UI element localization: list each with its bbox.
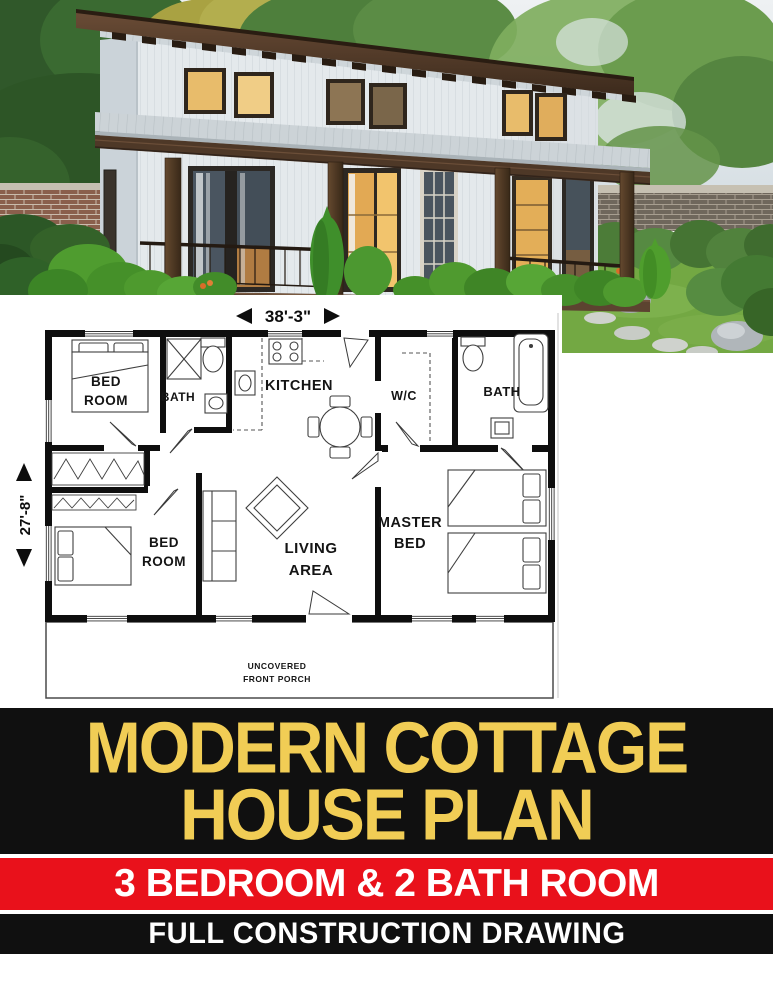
bath-right-label: BATH	[483, 384, 520, 399]
arrow-down-icon	[16, 549, 32, 567]
tagline-banner: FULL CONSTRUCTION DRAWING	[0, 914, 773, 954]
bath-left-label: BATH	[161, 390, 195, 404]
bedroom-bottom-label-line1: BED	[149, 535, 179, 550]
sink-icon	[491, 418, 513, 438]
toilet-icon	[461, 337, 485, 371]
floor-plan-card: 38'-3" 27'-8" UNCOVERED FRONT PORCH	[0, 295, 562, 708]
kitchen-label: KITCHEN	[265, 378, 333, 394]
cover-banners: MODERN COTTAGE HOUSE PLAN 3 BEDROOM & 2 …	[0, 708, 773, 954]
stove-icon	[269, 339, 302, 364]
arrow-right-icon	[324, 308, 340, 324]
closet-icon	[52, 453, 144, 510]
tagline-text: FULL CONSTRUCTION DRAWING	[148, 917, 625, 951]
window-icon	[537, 95, 565, 139]
width-dimension-label: 38'-3"	[265, 307, 311, 326]
porch-label-line2: FRONT PORCH	[243, 674, 311, 684]
porch-label-line1: UNCOVERED	[248, 661, 307, 671]
master-label-line1: MASTER	[378, 515, 442, 531]
sofa-icon	[203, 491, 236, 581]
dimension-width: 38'-3"	[236, 307, 340, 326]
floor-plan: 38'-3" 27'-8" UNCOVERED FRONT PORCH	[0, 295, 562, 708]
window-icon	[236, 74, 272, 116]
bathtub-icon	[514, 334, 548, 412]
bed-icon	[448, 533, 546, 593]
window-icon	[371, 85, 405, 127]
rug-icon	[246, 477, 308, 539]
bedroom-top-label-line2: ROOM	[84, 393, 128, 408]
wc-label: W/C	[391, 389, 417, 403]
window-icon	[328, 81, 363, 123]
front-porch: UNCOVERED FRONT PORCH	[46, 622, 553, 698]
title-line2: HOUSE PLAN	[180, 778, 593, 852]
subtitle-text: 3 BEDROOM & 2 BATH ROOM	[114, 862, 659, 906]
bedroom-top-label-line1: BED	[91, 374, 121, 389]
subtitle-banner: 3 BEDROOM & 2 BATH ROOM	[0, 858, 773, 910]
bed-icon	[55, 527, 131, 585]
living-label-line1: LIVING	[284, 540, 337, 557]
arrow-left-icon	[236, 308, 252, 324]
title-banner: MODERN COTTAGE HOUSE PLAN	[0, 708, 773, 854]
bed-icon	[448, 470, 546, 526]
sink-icon	[205, 394, 227, 413]
toilet-icon	[201, 338, 225, 372]
arrow-up-icon	[16, 463, 32, 481]
living-label-line2: AREA	[289, 562, 334, 579]
shower-icon	[167, 339, 201, 379]
master-label-line2: BED	[394, 536, 426, 552]
bedroom-bottom-label-line2: ROOM	[142, 554, 186, 569]
dining-table-icon	[308, 396, 372, 458]
kitchen-sink-icon	[235, 371, 255, 395]
book-cover: 38'-3" 27'-8" UNCOVERED FRONT PORCH	[0, 0, 773, 1000]
dimension-height: 27'-8"	[16, 463, 34, 567]
window-icon	[504, 92, 531, 134]
height-dimension-label: 27'-8"	[17, 495, 34, 536]
window-icon	[186, 70, 224, 112]
